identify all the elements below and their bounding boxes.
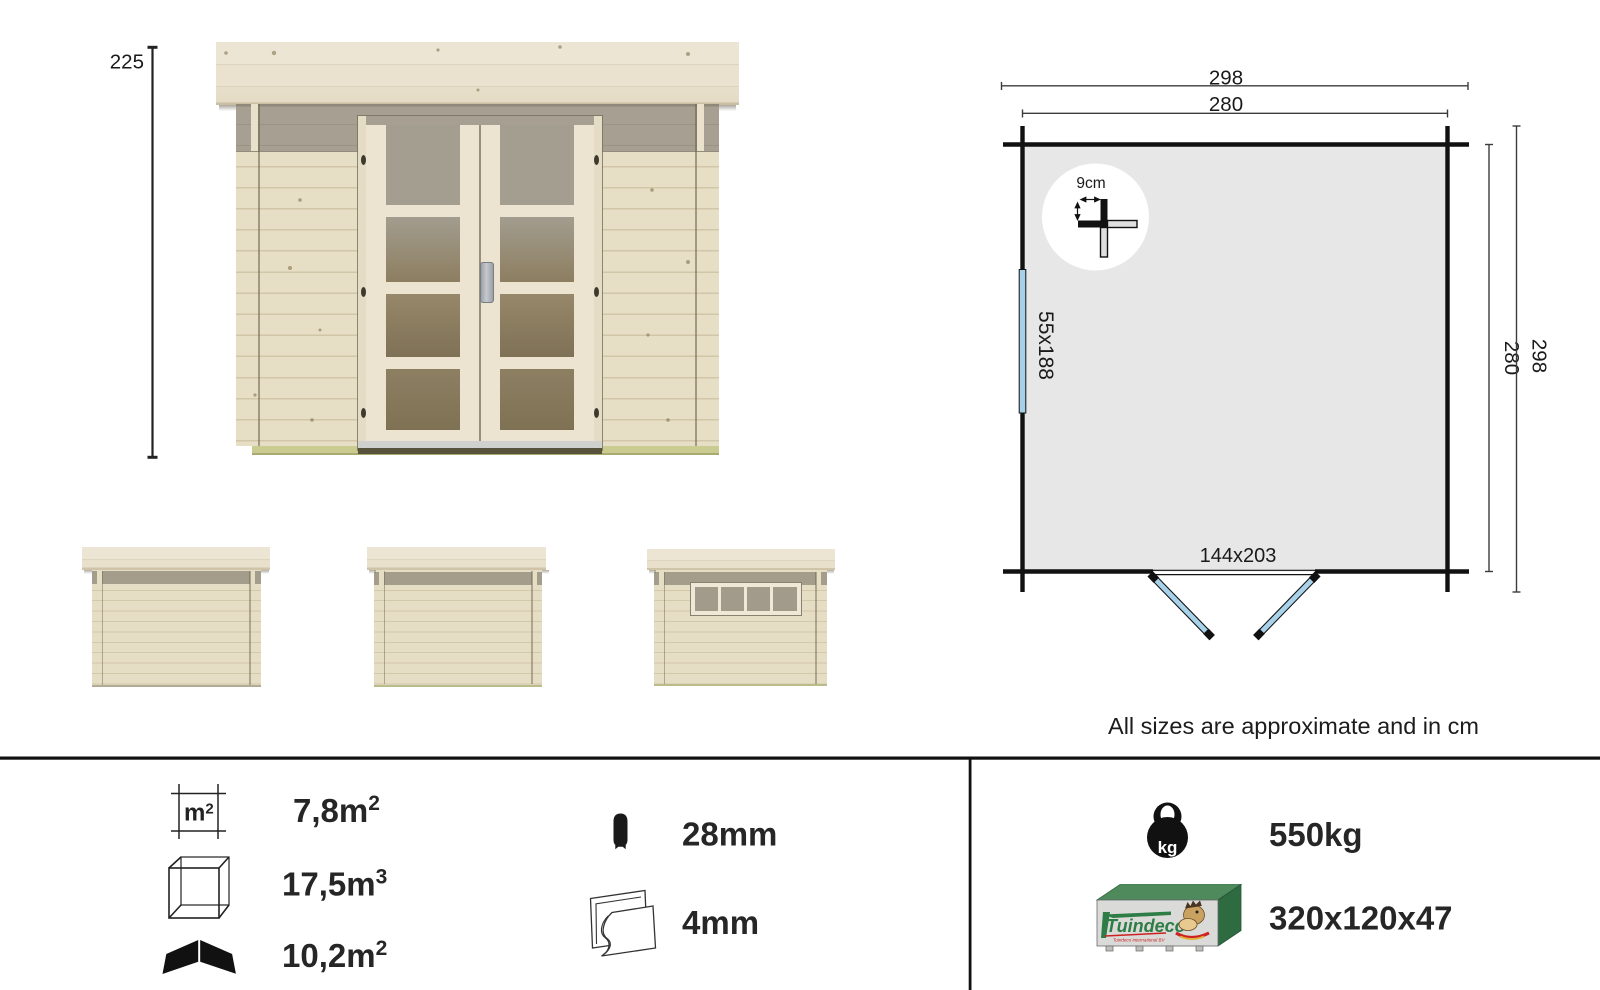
svg-text:7,8m2: 7,8m2 [293,792,380,829]
svg-text:144x203: 144x203 [1200,545,1277,567]
svg-text:All sizes are approximate and: All sizes are approximate and in cm [1108,713,1479,739]
svg-text:Tuindeco International BV: Tuindeco International BV [1113,938,1165,943]
svg-text:Tuindeco: Tuindeco [1106,916,1186,936]
svg-text:kg: kg [1158,838,1178,857]
svg-text:280: 280 [1209,93,1243,116]
svg-text:280: 280 [1500,341,1523,375]
svg-text:m2: m2 [184,800,214,827]
svg-text:55x188: 55x188 [1034,311,1057,380]
svg-text:298: 298 [1209,67,1243,90]
svg-text:225: 225 [110,51,144,74]
svg-text:17,5m3: 17,5m3 [282,866,387,903]
svg-text:320x120x47: 320x120x47 [1269,900,1453,937]
svg-text:10,2m2: 10,2m2 [282,937,387,974]
svg-text:28mm: 28mm [682,816,777,853]
svg-text:4mm: 4mm [682,904,759,941]
svg-text:9cm: 9cm [1076,175,1105,192]
svg-text:550kg: 550kg [1269,816,1363,853]
svg-text:298: 298 [1528,339,1551,373]
